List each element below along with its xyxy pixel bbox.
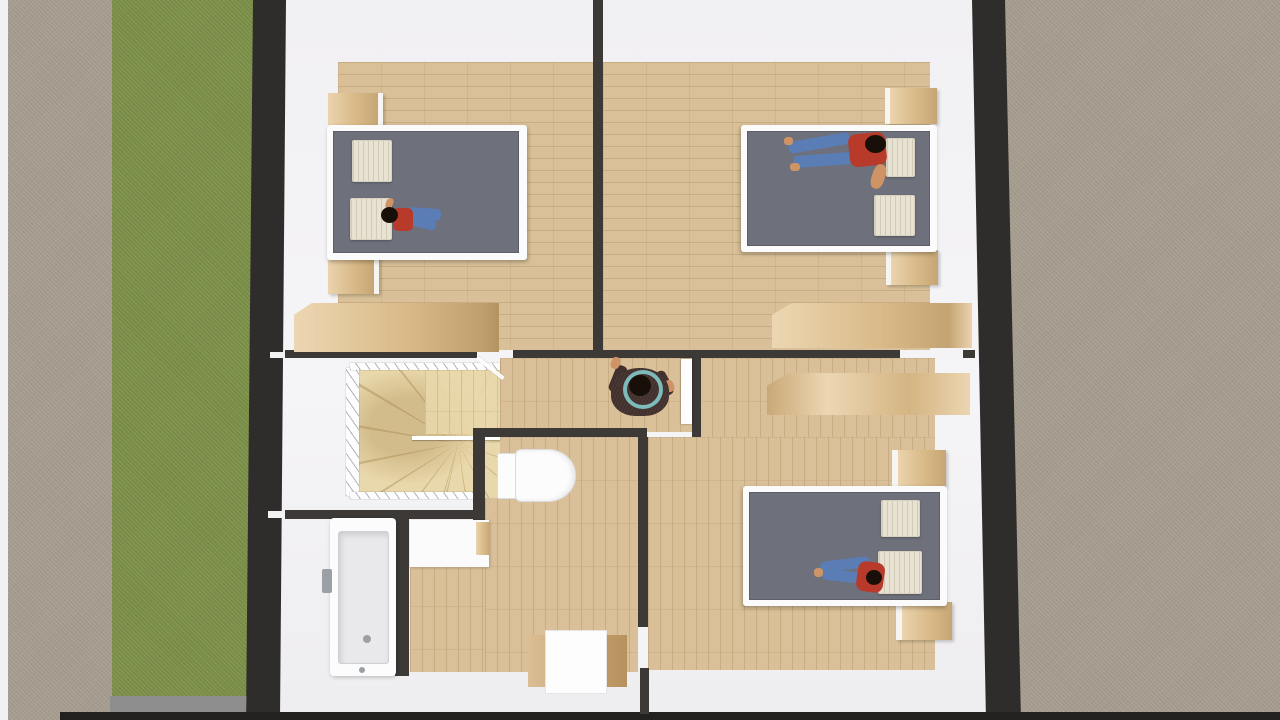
nightstand[interactable]	[892, 450, 946, 487]
bathtub-drain	[359, 667, 365, 673]
person-on-bed-top-right[interactable]	[784, 130, 889, 192]
bathtub[interactable]	[330, 518, 396, 676]
doorway-bottom-right-room	[638, 627, 648, 668]
person-foot	[790, 163, 800, 171]
lawn-strip	[112, 0, 253, 696]
stair-railing-top	[350, 363, 500, 370]
person-foot	[814, 568, 823, 577]
bed-top-left[interactable]	[327, 125, 527, 260]
pillow	[886, 138, 915, 177]
wall-wc-east-upper	[638, 437, 648, 627]
gravel-area-right	[1004, 0, 1280, 720]
wardrobe-top-left[interactable]	[294, 303, 499, 352]
pillow	[352, 140, 392, 182]
bathtub-basin	[338, 531, 389, 664]
stair-railing-bottom	[350, 492, 474, 499]
pillow	[881, 500, 920, 537]
wall-divider-top-bedrooms	[593, 0, 603, 358]
person-legs	[787, 132, 850, 155]
person-head	[866, 570, 882, 585]
stair-railing-left	[346, 368, 359, 496]
nightstand[interactable]	[328, 256, 379, 294]
wall-bathroom-east	[395, 518, 409, 676]
person-head	[381, 207, 398, 223]
person-legs	[793, 152, 854, 168]
person-head	[629, 375, 651, 396]
desk[interactable]	[528, 630, 627, 692]
wardrobe-top-right[interactable]	[772, 303, 972, 348]
bathtub-drain	[363, 635, 371, 643]
wall-wc-west	[473, 437, 485, 520]
doorway-bedroom-top-right	[900, 350, 963, 358]
wardrobe-bottom-right[interactable]	[767, 373, 970, 415]
pillow	[874, 195, 915, 236]
stair-landing	[425, 368, 500, 434]
person-head	[865, 135, 886, 153]
person-arm	[868, 163, 888, 191]
nightstand[interactable]	[896, 602, 952, 640]
exterior-wall-left	[246, 0, 286, 720]
wall-hall-stub	[692, 352, 701, 437]
wall-junction-notch-b	[268, 511, 285, 518]
person-on-bed-bottom-right[interactable]	[812, 553, 887, 593]
bathtub-faucet	[322, 569, 332, 593]
gravel-path-left	[8, 0, 112, 720]
person-foot	[784, 137, 793, 145]
floor-plan-canvas	[0, 0, 1280, 720]
desk-top	[545, 630, 607, 694]
nightstand[interactable]	[885, 88, 937, 124]
person-hallway[interactable]	[598, 350, 688, 422]
nightstand[interactable]	[886, 250, 938, 285]
vanity-cabinet	[476, 522, 490, 555]
wall-wc-north	[473, 428, 647, 437]
exterior-wall-bottom	[60, 712, 1280, 720]
toilet[interactable]	[497, 449, 574, 500]
person-on-bed-top-left[interactable]	[380, 196, 446, 234]
wall-junction-notch-a	[270, 352, 285, 358]
wall-wc-east-lower	[640, 668, 649, 714]
toilet-bowl	[515, 449, 576, 502]
